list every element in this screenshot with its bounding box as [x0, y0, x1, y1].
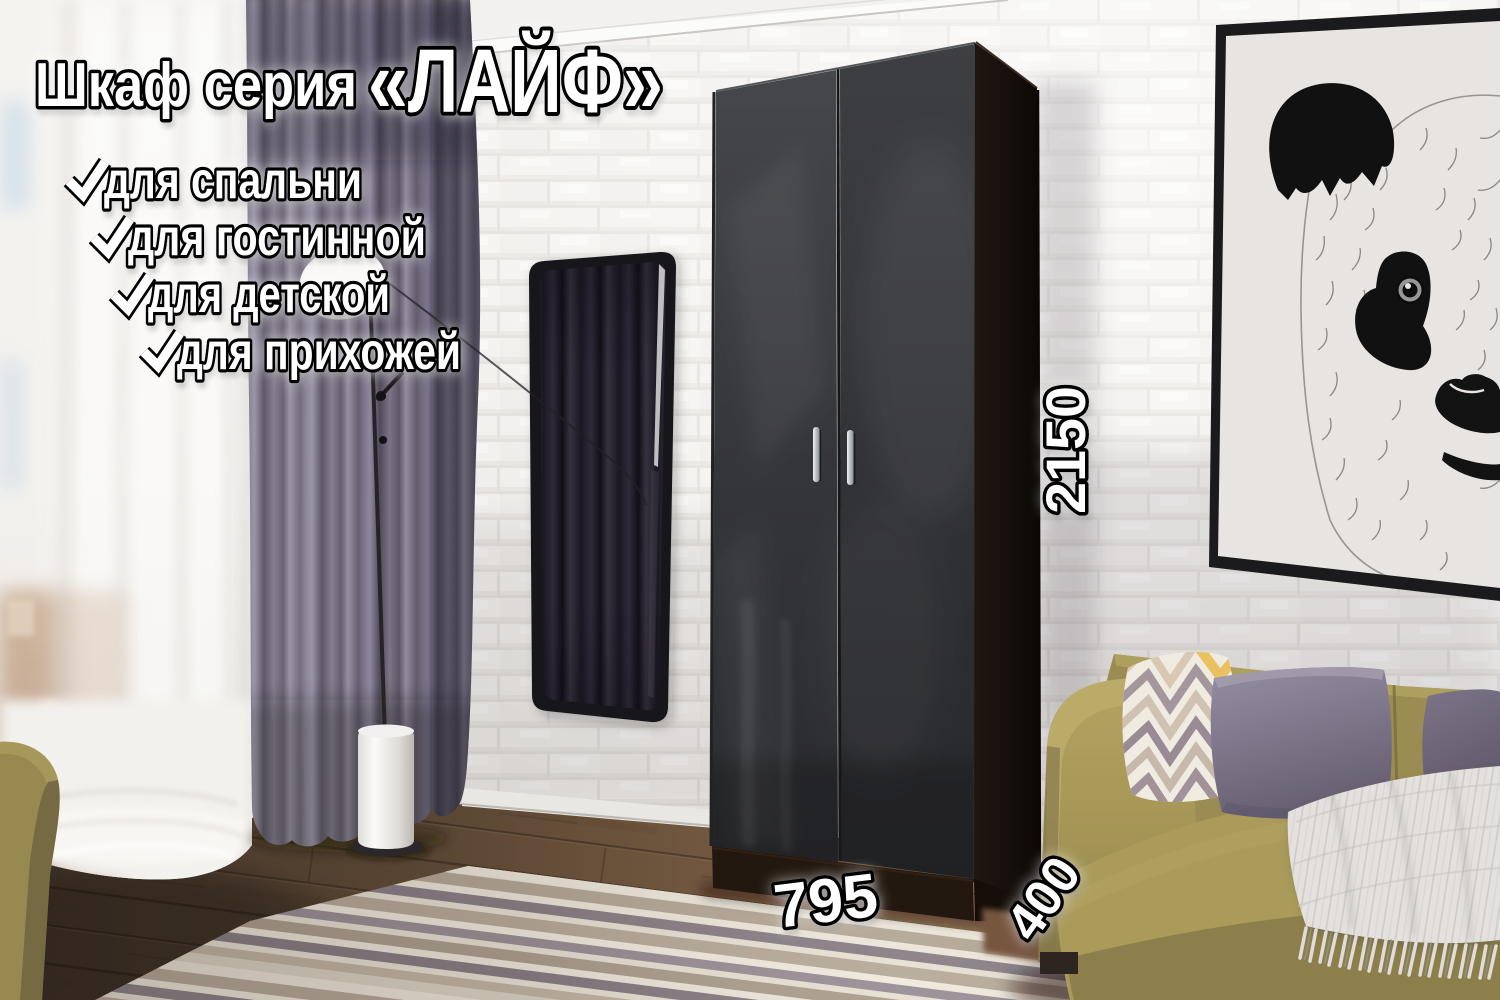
svg-text:795: 795 — [770, 861, 881, 942]
svg-text:2150: 2150 — [1034, 386, 1097, 514]
svg-text:«ЛАЙФ»: «ЛАЙФ» — [368, 29, 663, 132]
svg-text:для детской: для детской — [148, 266, 390, 324]
svg-text:для гостинной: для гостинной — [128, 209, 426, 267]
svg-text:Шкаф серия: Шкаф серия — [35, 51, 357, 120]
svg-text:для прихожей: для прихожей — [177, 323, 461, 381]
svg-text:для спальни: для спальни — [104, 152, 362, 210]
